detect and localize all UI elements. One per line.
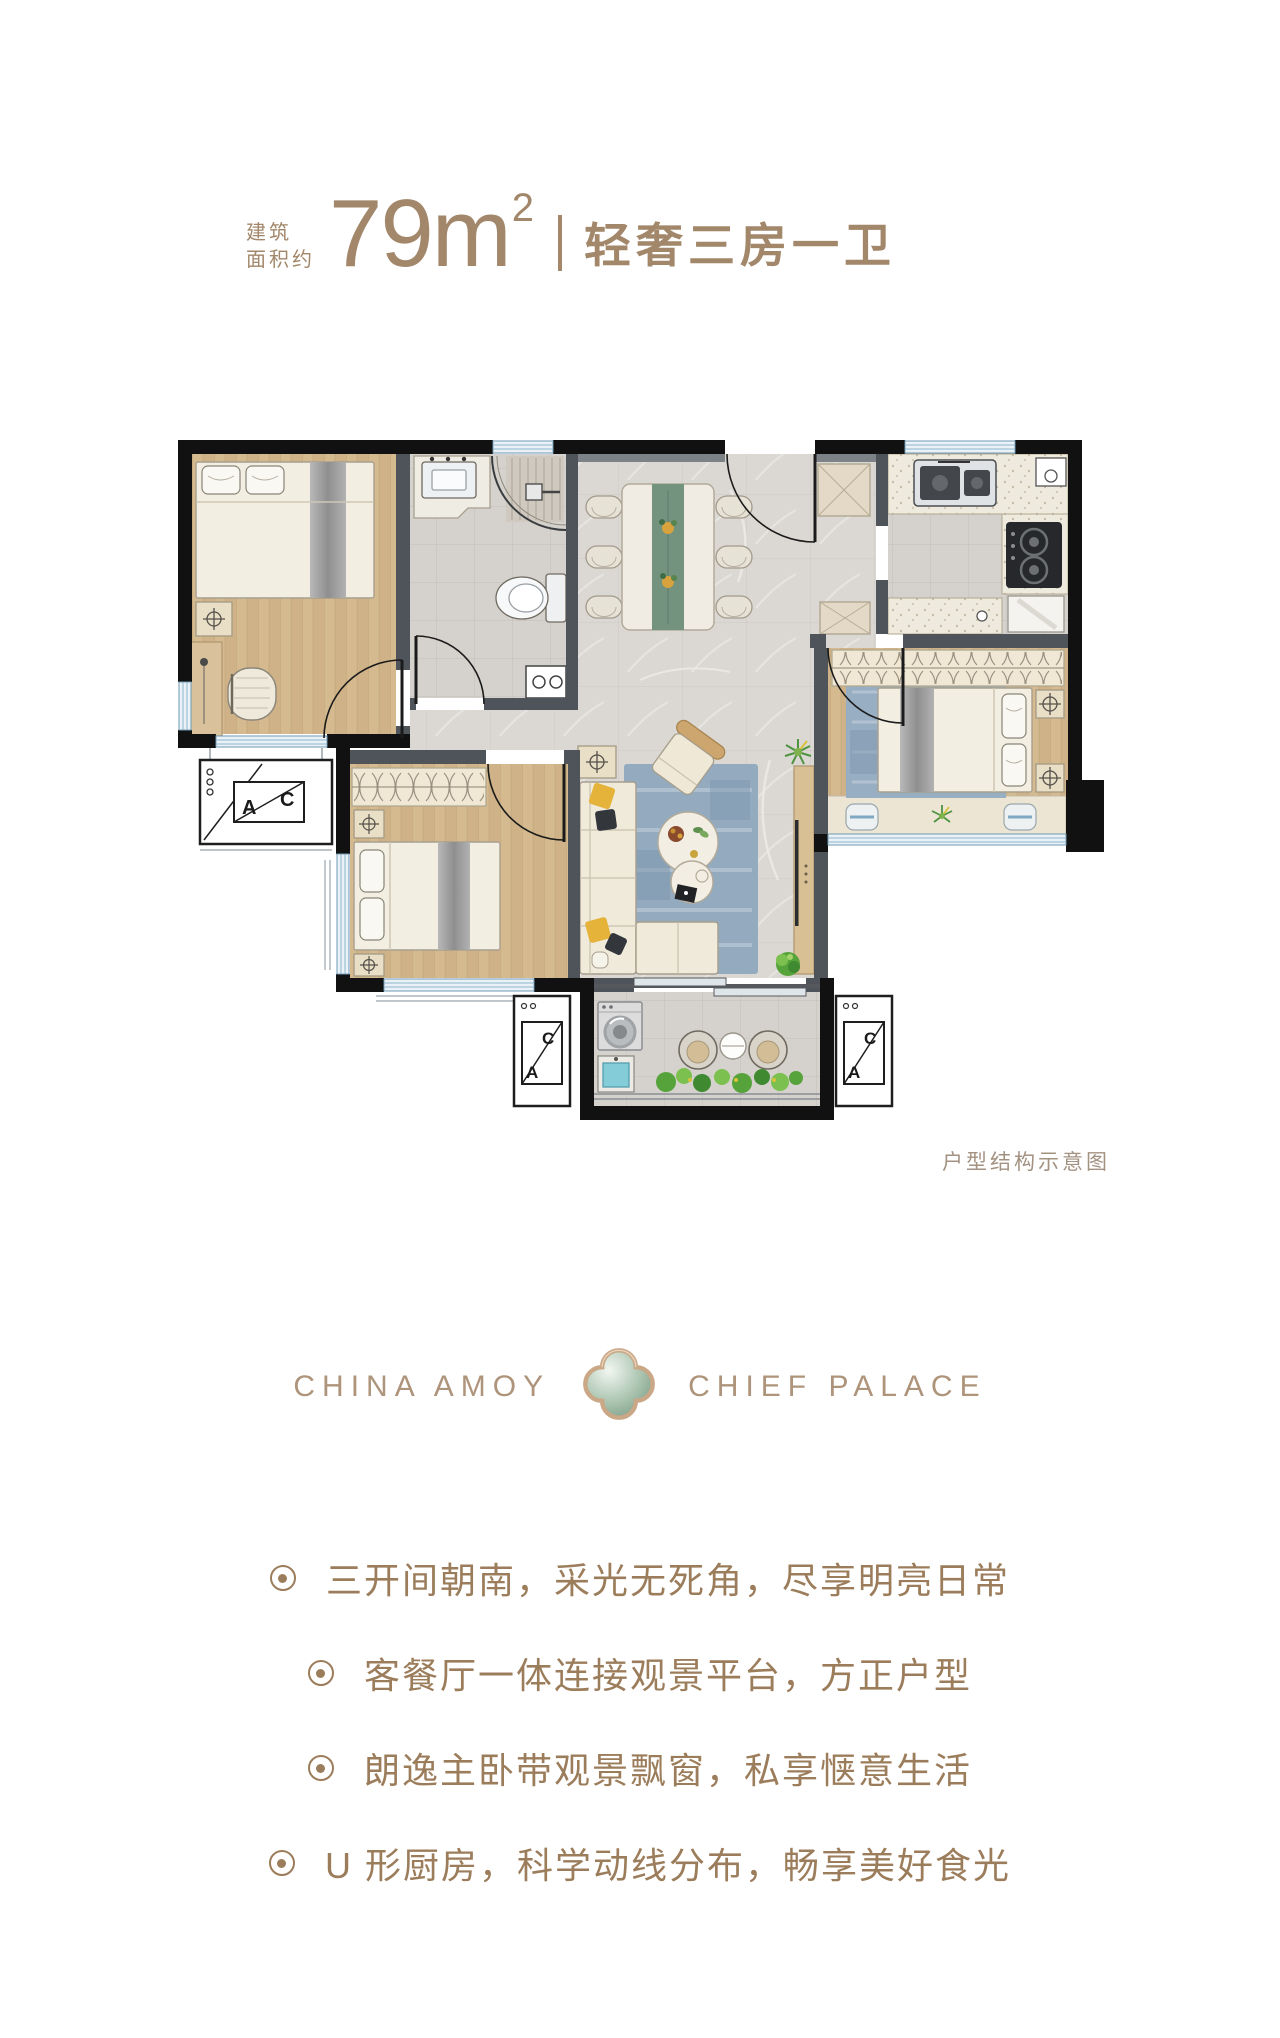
- bullet-target-icon: [308, 1755, 334, 1781]
- feature-item: 朗逸主卧带观景飘窗，私享惬意生活: [0, 1742, 1280, 1794]
- feature-text: 客餐厅一体连接观景平台，方正户型: [364, 1647, 972, 1699]
- ac-label-a: A: [526, 1063, 538, 1082]
- plan-caption: 户型结构示意图: [942, 1146, 1110, 1176]
- area-number: 79m: [329, 186, 510, 282]
- header-tagline: 轻奢三房一卫: [584, 207, 896, 276]
- area-prefix-line2: 面积约: [246, 247, 315, 274]
- header: 建筑 面积约 79m2 轻奢三房一卫: [246, 186, 896, 282]
- ac-label-a: A: [242, 797, 256, 819]
- area-prefix: 建筑 面积约: [246, 220, 315, 274]
- feature-item: U 形厨房，科学动线分布，畅享美好食光: [0, 1837, 1280, 1889]
- bullet-target-icon: [308, 1660, 334, 1686]
- feature-item: 客餐厅一体连接观景平台，方正户型: [0, 1647, 1280, 1699]
- area-value: 79m2: [329, 186, 532, 282]
- feature-text: U 形厨房，科学动线分布，畅享美好食光: [325, 1837, 1011, 1889]
- ac-label-c: C: [280, 789, 294, 811]
- ac-label-c: C: [864, 1029, 876, 1048]
- logo-quatrefoil-icon: [580, 1336, 658, 1437]
- feature-text: 朗逸主卧带观景飘窗，私享惬意生活: [364, 1742, 972, 1794]
- logo-right-text: CHIEF PALACE: [688, 1370, 987, 1404]
- ac-unit-bottom-left: C A: [514, 996, 570, 1106]
- ac-unit-bottom-right: C A: [836, 996, 892, 1106]
- feature-text: 三开间朝南，采光无死角，尽享明亮日常: [326, 1552, 1010, 1604]
- feature-item: 三开间朝南，采光无死角，尽享明亮日常: [0, 1552, 1280, 1604]
- floorplan-drawing: A C C A C A: [170, 430, 1110, 1130]
- bullet-target-icon: [269, 1850, 295, 1876]
- ac-label-a: A: [848, 1063, 860, 1082]
- bullet-target-icon: [270, 1565, 296, 1591]
- area-prefix-line1: 建筑: [246, 220, 315, 247]
- header-divider: [558, 215, 562, 271]
- brand-logo: CHINA AMOY CHIEF PALACE: [0, 1336, 1280, 1437]
- area-exponent: 2: [512, 188, 532, 228]
- ac-label-c: C: [542, 1029, 554, 1048]
- bedroom-2: [352, 768, 500, 976]
- logo-left-text: CHINA AMOY: [293, 1370, 550, 1404]
- ac-unit-left: A C: [200, 748, 332, 850]
- poster-page: 建筑 面积约 79m2 轻奢三房一卫: [0, 0, 1280, 2038]
- feature-list: 三开间朝南，采光无死角，尽享明亮日常 客餐厅一体连接观景平台，方正户型 朗逸主卧…: [0, 1552, 1280, 1932]
